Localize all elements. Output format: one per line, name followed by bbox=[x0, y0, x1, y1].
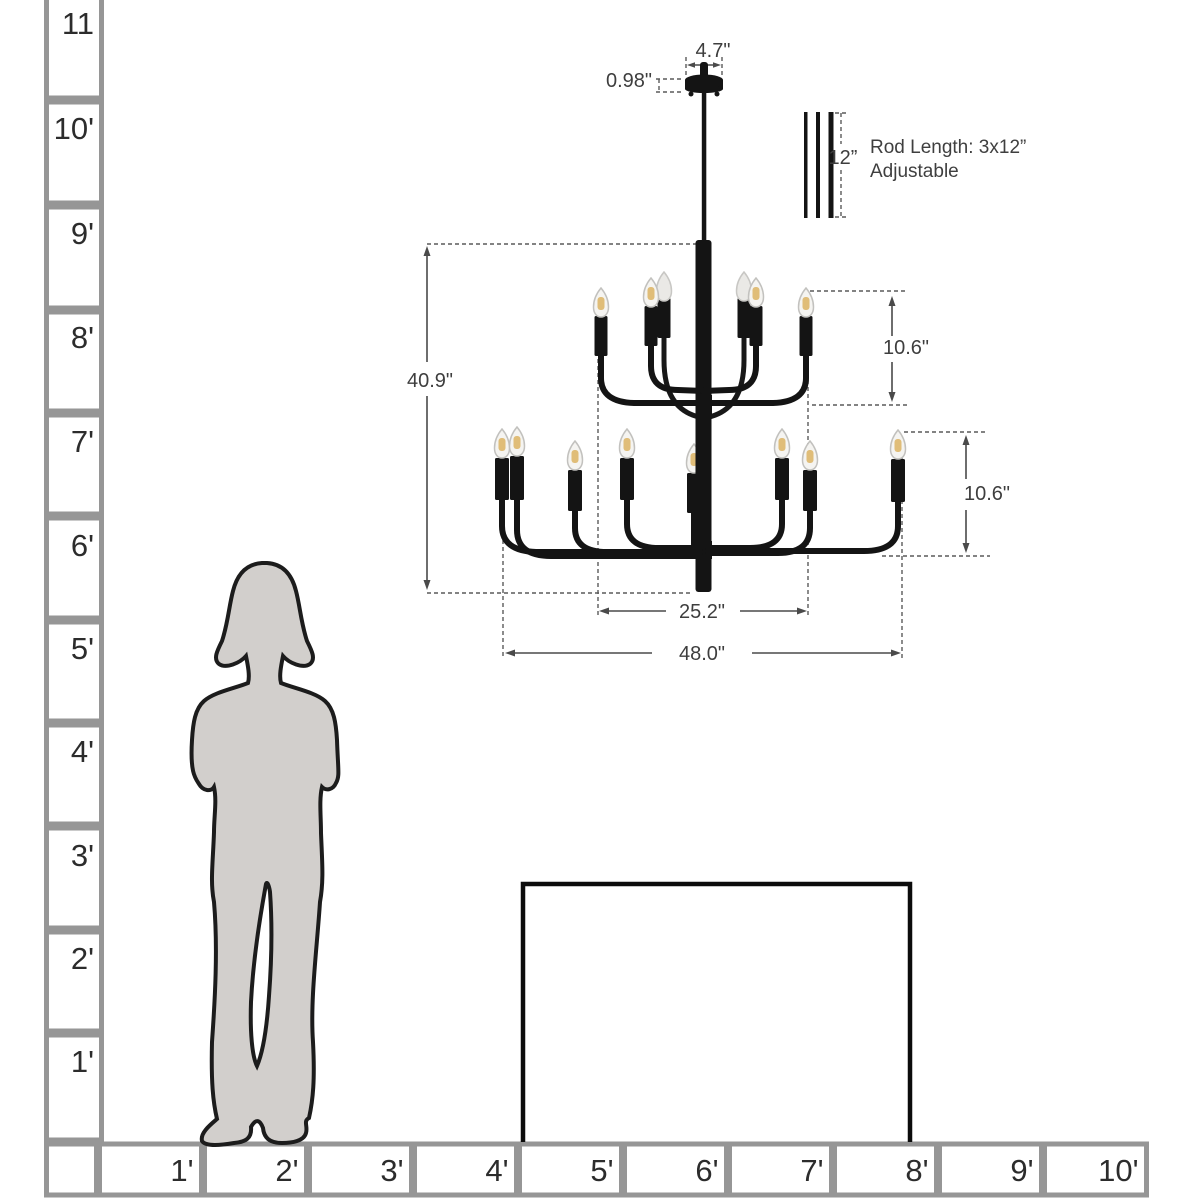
arrow-down bbox=[889, 392, 896, 402]
scale-diagram: 11 10' 9' 8' 7' 6' 5' 4' 3' 2' 1' 1' 2' … bbox=[0, 0, 1200, 1200]
arrow-right bbox=[713, 62, 721, 68]
arrow-down bbox=[424, 580, 431, 590]
left-ruler-label: 11 bbox=[62, 6, 94, 41]
arrow-up bbox=[889, 296, 896, 306]
arrow-left bbox=[505, 650, 515, 657]
candle-tube bbox=[620, 458, 634, 500]
rod-1 bbox=[804, 112, 808, 218]
left-ruler: 11 10' 9' 8' 7' 6' 5' 4' 3' 2' 1' bbox=[47, 0, 102, 1140]
bottom-ruler-label: 10' bbox=[1098, 1153, 1138, 1188]
candle-arm bbox=[708, 498, 782, 548]
arrow-down bbox=[963, 543, 970, 553]
left-ruler-label: 6' bbox=[71, 528, 94, 563]
person-silhouette bbox=[192, 563, 339, 1145]
upper-tier-width-label: 25.2" bbox=[679, 601, 725, 623]
rod-note-line2: Adjustable bbox=[870, 161, 959, 182]
down-rod bbox=[702, 93, 707, 243]
bottom-ruler-label: 7' bbox=[800, 1153, 823, 1188]
candle-tube bbox=[658, 298, 671, 338]
candle-arm bbox=[502, 498, 700, 552]
bottom-ruler-label: 5' bbox=[590, 1153, 613, 1188]
rod-note-line1: Rod Length: 3x12” bbox=[870, 137, 1026, 158]
arrow-right bbox=[891, 650, 901, 657]
bulb-filament bbox=[572, 450, 579, 463]
bulb-filament bbox=[648, 287, 655, 300]
candle-tube bbox=[510, 456, 524, 500]
candle-tube bbox=[568, 470, 582, 511]
bottom-ruler: 1' 2' 3' 4' 5' 6' 7' 8' 9' 10' bbox=[47, 1144, 1147, 1195]
bulb-filament bbox=[499, 438, 506, 451]
left-ruler-label: 2' bbox=[71, 941, 94, 976]
center-pole bbox=[696, 240, 712, 592]
candle-tube bbox=[891, 459, 905, 502]
candle-tube bbox=[738, 298, 751, 338]
left-ruler-label: 3' bbox=[71, 838, 94, 873]
lower-tier-width-label: 48.0" bbox=[679, 643, 725, 665]
candle-tube bbox=[803, 470, 817, 511]
bottom-ruler-label: 1' bbox=[170, 1153, 193, 1188]
bulb-filament bbox=[803, 297, 810, 310]
left-ruler-label: 9' bbox=[71, 216, 94, 251]
bottom-ruler-label: 6' bbox=[695, 1153, 718, 1188]
bottom-ruler-label: 9' bbox=[1010, 1153, 1033, 1188]
ceiling-canopy bbox=[685, 62, 723, 97]
arrow-up bbox=[963, 435, 970, 445]
lower-tier-height-label: 10.6" bbox=[964, 483, 1010, 505]
rod-2 bbox=[816, 112, 820, 218]
canopy-width-label: 4.7" bbox=[696, 40, 731, 62]
bulb-filament bbox=[895, 439, 902, 452]
left-ruler-label: 1' bbox=[71, 1044, 94, 1079]
candle-tube bbox=[645, 306, 658, 346]
arrow-up bbox=[424, 246, 431, 256]
bulb-filament bbox=[624, 438, 631, 451]
bottom-ruler-label: 4' bbox=[485, 1153, 508, 1188]
left-ruler-label: 4' bbox=[71, 734, 94, 769]
arrow-right bbox=[797, 608, 807, 615]
candle-tube bbox=[495, 458, 509, 500]
chandelier bbox=[495, 62, 906, 592]
bottom-ruler-label: 2' bbox=[275, 1153, 298, 1188]
bulb-filament bbox=[807, 450, 814, 463]
canopy-screw bbox=[715, 92, 720, 97]
bottom-ruler-label: 3' bbox=[380, 1153, 403, 1188]
arrow-left bbox=[599, 608, 609, 615]
bulb-filament bbox=[598, 297, 605, 310]
bottom-ruler-corner-box bbox=[47, 1144, 97, 1195]
left-ruler-label: 7' bbox=[71, 424, 94, 459]
candle-tube bbox=[750, 306, 763, 346]
bulb-filament bbox=[753, 287, 760, 300]
bulb-filament bbox=[514, 436, 521, 449]
canopy-screw bbox=[689, 92, 694, 97]
fixture-height-label: 40.9" bbox=[407, 370, 453, 392]
candle-tube bbox=[800, 316, 813, 356]
arrow-left bbox=[687, 62, 695, 68]
rod-segment-label: 12” bbox=[829, 147, 858, 169]
diagram-canvas: 11 10' 9' 8' 7' 6' 5' 4' 3' 2' 1' 1' 2' … bbox=[0, 0, 1200, 1200]
table-outline bbox=[523, 884, 910, 1142]
left-ruler-label: 5' bbox=[71, 631, 94, 666]
bottom-ruler-label: 8' bbox=[905, 1153, 928, 1188]
left-ruler-label: 8' bbox=[71, 320, 94, 355]
upper-tier-height-label: 10.6" bbox=[883, 337, 929, 359]
rod-bundle: 12” Rod Length: 3x12” Adjustable bbox=[804, 112, 1026, 218]
candle-tube bbox=[775, 458, 789, 500]
canopy-height-label: 0.98" bbox=[606, 70, 652, 92]
candle-tube bbox=[595, 316, 608, 356]
left-ruler-label: 10' bbox=[54, 111, 94, 146]
bulb-filament bbox=[779, 438, 786, 451]
